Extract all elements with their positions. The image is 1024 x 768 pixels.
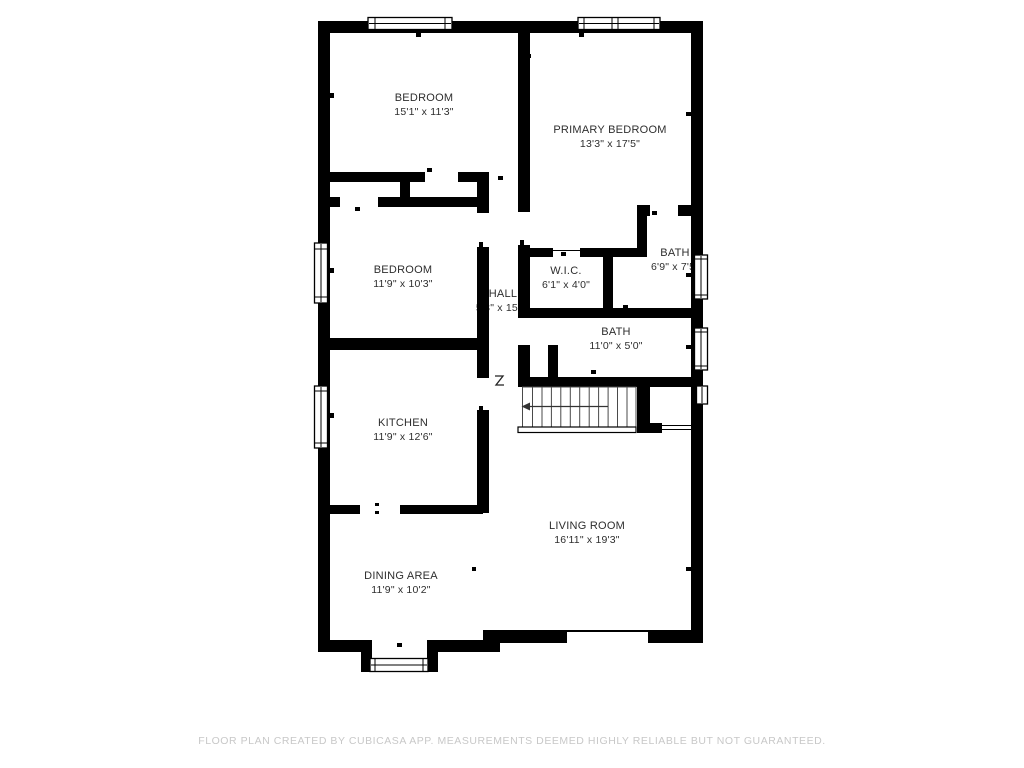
window-left-kitchen bbox=[315, 386, 328, 448]
stairs-direction-arrow bbox=[522, 403, 609, 411]
floor-plan-page: BEDROOM 15'1" x 11'3" PRIMARY BEDROOM 13… bbox=[0, 0, 1024, 768]
window-left-bedroom-2 bbox=[315, 243, 328, 303]
window-right-landing bbox=[697, 386, 708, 404]
window-bay-dining bbox=[370, 659, 428, 672]
window-right-bath-2 bbox=[695, 328, 708, 370]
floorplan-drawing bbox=[0, 0, 1024, 768]
window-right-bath-1 bbox=[695, 255, 708, 299]
interior-walls bbox=[318, 33, 703, 514]
window-top-bedroom bbox=[368, 18, 452, 30]
stairs-bottom-rail bbox=[518, 427, 636, 433]
stairs-break-mark bbox=[495, 376, 504, 385]
window-top-primary-bedroom bbox=[578, 18, 660, 30]
disclaimer-text: FLOOR PLAN CREATED BY CUBICASA APP. MEAS… bbox=[0, 735, 1024, 747]
